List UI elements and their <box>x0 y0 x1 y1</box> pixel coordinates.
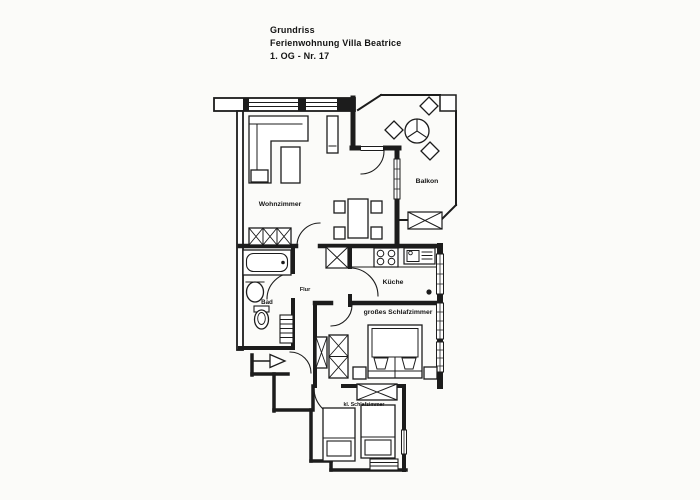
sideboard <box>249 228 291 245</box>
room-label-grosses-schlafzimmer: großes Schlafzimmer <box>364 309 433 316</box>
room-label-kueche: Küche <box>383 279 404 286</box>
towel-radiator <box>280 315 293 343</box>
entry-arrow-icon <box>270 355 285 368</box>
balcony-door-threshold <box>361 145 383 152</box>
dining-chair <box>334 201 345 213</box>
door-bath <box>267 273 293 299</box>
floorplan-page: Grundriss Ferienwohnung Villa Beatrice 1… <box>0 0 700 500</box>
nightstand <box>424 367 437 379</box>
bathtub <box>243 250 291 275</box>
floor-drain-dot <box>426 289 431 294</box>
balcony-chair <box>420 97 438 115</box>
hall-wardrobe <box>316 337 327 368</box>
entry-elements <box>254 355 285 368</box>
balcony-flower-box <box>408 212 442 229</box>
kitchen-sink <box>404 248 435 264</box>
nightstand <box>353 367 366 379</box>
room-label-kl-schlafzimmer: kl. Schlafzimmer <box>344 402 385 408</box>
room-label-balkon: Balkon <box>416 178 439 185</box>
door-balcony <box>361 151 384 174</box>
balcony-chair <box>385 121 403 139</box>
living-room-furniture <box>249 116 382 245</box>
dining-chair <box>371 201 382 213</box>
window-bedroom-right-1 <box>437 303 444 339</box>
radiator <box>370 459 398 470</box>
kitchen-cabinet <box>326 247 348 268</box>
pillow <box>374 358 388 369</box>
single-bed <box>361 405 395 458</box>
window-bedroom-small-right <box>402 430 407 454</box>
door-living-hall <box>297 223 320 246</box>
window-kitchen-right <box>437 254 444 294</box>
pillow <box>402 358 416 369</box>
bedroom-large-furniture <box>316 325 437 379</box>
balcony-table <box>405 119 429 143</box>
dining-table <box>348 199 368 238</box>
balcony-chair <box>421 142 439 160</box>
bedroom-wardrobe <box>329 335 348 378</box>
room-label-flur: Flur <box>300 287 311 293</box>
window-living-extension <box>394 159 400 199</box>
door-entry <box>290 352 311 373</box>
toilet <box>254 306 269 329</box>
bathroom-fixtures <box>243 250 293 343</box>
bedroom-small-furniture <box>323 384 398 470</box>
door-bedroom-large <box>331 305 352 326</box>
room-label-wohnzimmer: Wohnzimmer <box>259 201 302 208</box>
stove <box>374 248 398 267</box>
coffee-table <box>281 147 300 183</box>
dining-chair <box>371 227 382 239</box>
dining-chair <box>334 227 345 239</box>
floorplan-drawing: Wohnzimmer Balkon Küche Flur Bad großes … <box>0 0 700 500</box>
room-label-bad: Bad <box>261 299 273 306</box>
kitchen-fixtures <box>326 247 436 295</box>
single-bed <box>323 408 355 461</box>
small-bedroom-wardrobe <box>357 384 397 400</box>
double-bed <box>368 325 422 378</box>
balcony-pillar <box>440 95 456 111</box>
door-kitchen <box>350 268 378 296</box>
tv-board <box>327 116 338 153</box>
